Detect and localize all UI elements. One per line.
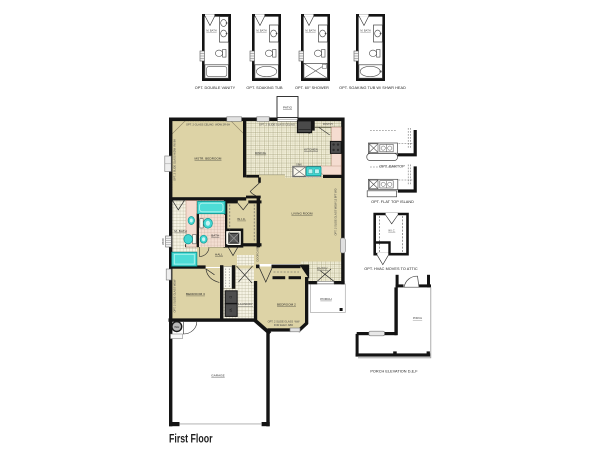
svg-text:PATIO: PATIO xyxy=(283,105,293,109)
svg-text:PORCH ELEVATION D,E,F: PORCH ELEVATION D,E,F xyxy=(370,370,418,374)
svg-text:W.I.C.: W.I.C. xyxy=(388,228,395,232)
svg-text:D: D xyxy=(229,296,233,299)
svg-text:M. BATH: M. BATH xyxy=(305,28,315,32)
svg-text:HALL: HALL xyxy=(215,253,223,257)
svg-text:LAUNDRY: LAUNDRY xyxy=(238,302,253,306)
svg-text:ENTRY: ENTRY xyxy=(317,267,328,271)
svg-text:OPT. HVAC MOVES TO ATTIC: OPT. HVAC MOVES TO ATTIC xyxy=(364,267,418,271)
svg-text:DOORCASE: DOORCASE xyxy=(256,246,260,261)
svg-text:W.I.C.: W.I.C. xyxy=(237,217,246,221)
svg-text:BATH: BATH xyxy=(211,234,219,238)
svg-text:OPT. BARTOP: OPT. BARTOP xyxy=(379,164,405,168)
svg-text:OPT. 60″ SHOWER: OPT. 60″ SHOWER xyxy=(295,86,329,90)
svg-text:W: W xyxy=(229,308,233,312)
svg-text:OPT. 2 SLIDE GLASS WDW 12 8FT: OPT. 2 SLIDE GLASS WDW 12 8FT WD xyxy=(334,188,338,235)
svg-text:OPT. 2 SLIDE GLASS WDW R6 8H: OPT. 2 SLIDE GLASS WDW R6 8H xyxy=(173,139,177,181)
svg-text:First Floor: First Floor xyxy=(169,432,213,446)
svg-text:WDW: WDW xyxy=(161,238,165,245)
svg-text:BEDROOM 3: BEDROOM 3 xyxy=(186,292,205,296)
svg-text:LIVING ROOM: LIVING ROOM xyxy=(291,212,313,216)
svg-text:OPT. 2 SLIDE GLASS CELING: OPT. 2 SLIDE GLASS CELING xyxy=(259,123,295,127)
svg-text:PANTRY: PANTRY xyxy=(323,122,334,126)
svg-text:GARAGE: GARAGE xyxy=(211,373,224,377)
svg-text:MSTR. BEDROOM: MSTR. BEDROOM xyxy=(195,157,222,161)
svg-text:OPT. SOAKING TUB W/ SHWR HEAD: OPT. SOAKING TUB W/ SHWR HEAD xyxy=(339,86,406,90)
svg-text:M. BATH: M. BATH xyxy=(206,28,216,32)
svg-text:SINK: SINK xyxy=(296,163,302,167)
svg-text:DINING: DINING xyxy=(255,151,267,155)
svg-text:KITCHEN: KITCHEN xyxy=(304,147,318,151)
svg-text:M. BATH: M. BATH xyxy=(174,229,187,233)
svg-text:OPT. 2 SLIDE GLASS WW: OPT. 2 SLIDE GLASS WW xyxy=(268,320,300,324)
svg-text:PORCH: PORCH xyxy=(320,297,331,301)
svg-text:PORCH: PORCH xyxy=(413,316,422,320)
svg-text:BEDROOM 2: BEDROOM 2 xyxy=(277,302,296,306)
svg-text:FOR ELEV. ABD: FOR ELEV. ABD xyxy=(274,323,293,327)
svg-text:M. BATH: M. BATH xyxy=(256,28,266,32)
svg-text:M. BATH: M. BATH xyxy=(360,28,370,32)
svg-text:OPT. FLAT TOP ISLAND: OPT. FLAT TOP ISLAND xyxy=(371,200,414,204)
svg-text:OPT. SOAKING TUB: OPT. SOAKING TUB xyxy=(246,86,283,90)
svg-text:OPT. DOUBLE VANITY: OPT. DOUBLE VANITY xyxy=(195,86,236,90)
svg-text:OPT. 2 SLIDE GLASS WDW: OPT. 2 SLIDE GLASS WDW xyxy=(173,279,177,313)
svg-text:OPT. 2 GLASS CELING WDW 2R 6H: OPT. 2 GLASS CELING WDW 2R 6H xyxy=(186,123,230,127)
svg-text:WH: WH xyxy=(174,325,179,329)
